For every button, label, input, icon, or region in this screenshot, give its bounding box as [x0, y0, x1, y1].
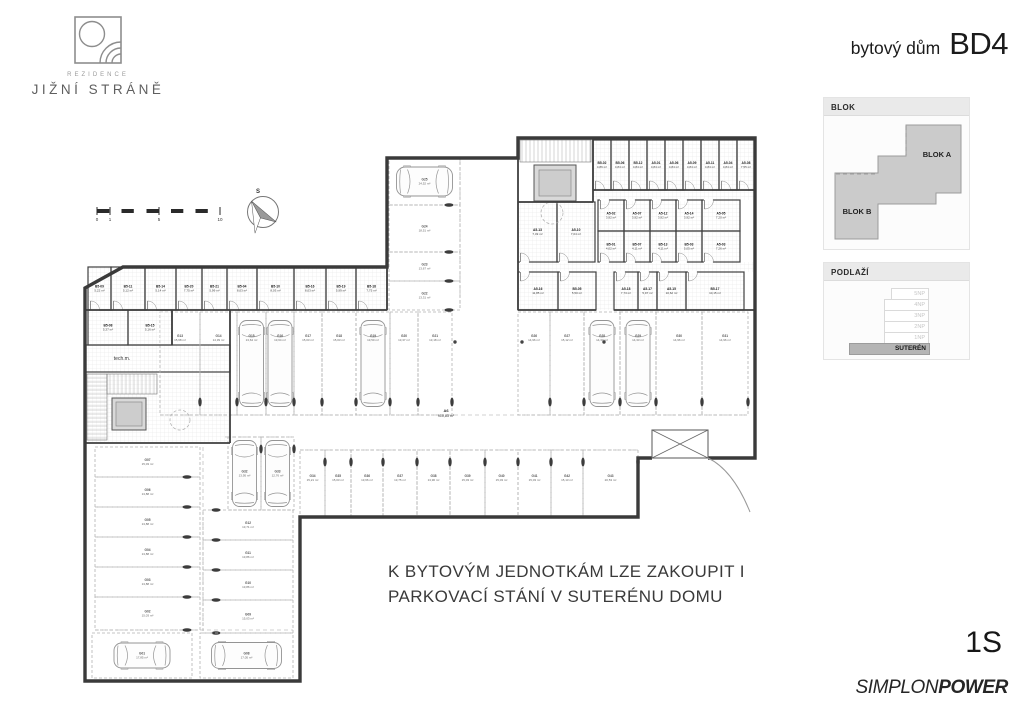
parking-space: G1213,71 m² [203, 508, 293, 540]
note-line-1: K BYTOVÝM JEDNOTKÁM LZE ZAKOUPIT I [388, 560, 745, 585]
parking-area: 14,96 m² [719, 338, 731, 342]
parking-area: 17,05 m² [241, 656, 253, 660]
parking-space: G1815,03 m² [320, 312, 356, 415]
parking-space: G0915,03 m² [203, 598, 293, 634]
plan-text: 5 [158, 217, 161, 222]
parking-space: G4320,53 m² [581, 450, 639, 517]
parking-space: G2013,37 m² [388, 312, 418, 415]
room-area: 7,75 m² [184, 289, 194, 293]
wheel-stop [183, 565, 192, 568]
parking-space: G2814,33 m² [582, 312, 620, 415]
storage-room: A5-1510,62 m² [657, 271, 686, 310]
parking-area: 14,96 m² [673, 338, 685, 342]
room-area: 4,84 m² [669, 165, 679, 169]
room-area: 10,15 m² [709, 291, 721, 295]
brand-top-label: REZIDENCE [28, 72, 168, 78]
wheel-stop [292, 398, 295, 407]
storage-room: B5-215,99 m² [202, 267, 227, 311]
parking-space: G0313,88 m² [95, 565, 200, 597]
parking-space: G1113,86 m² [203, 538, 293, 570]
parking-space: G1715,03 m² [292, 312, 322, 415]
room-area: 7,73 m² [621, 291, 631, 295]
parking-space: G1913,50 m² [354, 312, 390, 415]
wheel-stop [349, 458, 352, 467]
storage-room: B5-074,11 m² [624, 231, 650, 263]
plan-text: S [256, 189, 260, 195]
parking-space: G2715,12 m² [548, 312, 584, 415]
marketing-note: K BYTOVÝM JEDNOTKÁM LZE ZAKOUPIT I PARKO… [388, 560, 745, 609]
parking-area: 13,18 m² [429, 338, 441, 342]
parking-area: 15,03 m² [462, 478, 474, 482]
room-area: 4,02 m² [606, 247, 616, 251]
wheel-stop [198, 398, 201, 407]
parking-area: 13,37 m² [398, 338, 410, 342]
parking-space: G3415,21 m² [300, 450, 325, 517]
floorplan-sheet: REZIDENCE JIŽNÍ STRÁNĚ bytový dům BD4 [0, 0, 1024, 724]
storage-room: B5-207,75 m² [176, 267, 202, 311]
panel-blok-title: BLOK [824, 98, 969, 116]
storage-room: A5-175,97 m² [638, 271, 657, 310]
parking-space: G0513,88 m² [95, 505, 200, 537]
plan-text: 910,83 m² [438, 414, 455, 418]
room-area: 3,92 m² [658, 216, 668, 220]
wheel-stop [618, 398, 621, 407]
storage-room: A5-057,20 m² [702, 199, 740, 231]
floor-code: 1S [965, 626, 1002, 660]
wheel-stop [581, 458, 584, 467]
wheel-stop [323, 458, 326, 467]
plan-text: 0 [96, 217, 99, 222]
parking-area: 15,03 m² [302, 338, 314, 342]
room-area: 5,05 m² [684, 247, 694, 251]
parking-area: 13,88 m² [142, 582, 154, 586]
wheel-stop [212, 508, 221, 511]
stairs-icon [520, 140, 591, 162]
parking-space: G2113,18 m² [416, 312, 453, 415]
room-area: 5,50 m² [572, 291, 582, 295]
parking-space: G0117,85 m² [92, 633, 192, 678]
room-area: 10,62 m² [666, 291, 678, 295]
storage-room: A5-044,84 m² [719, 140, 737, 191]
storage-room: B5-145,14 m² [145, 267, 176, 311]
room-area: 7,26 m² [716, 247, 726, 251]
parking-space: G2213,31 m² [389, 279, 460, 311]
north-compass-icon [241, 195, 279, 233]
wheel-stop [700, 398, 703, 407]
parking-space: G3312,76 m² [259, 437, 295, 510]
wheel-stop [354, 398, 357, 407]
room-area: 5,22 m² [94, 289, 104, 293]
parking-area: 13,50 m² [367, 338, 379, 342]
block-map[interactable]: BLOK A BLOK B [824, 116, 971, 250]
parking-space: G3713,75 m² [381, 450, 417, 517]
room-area: 4,86 m² [597, 165, 607, 169]
storage-room: A5-064,84 m² [665, 140, 683, 191]
parking-space: G1513,64 m² [235, 312, 266, 415]
parking-space: G2914,33 m² [618, 312, 656, 415]
storage-room: A5-087,55 m² [737, 140, 755, 191]
parking-area: 13,86 m² [242, 585, 254, 589]
stairs-icon [87, 374, 107, 440]
wheel-stop [212, 568, 221, 571]
brand-name-label: JIŽNÍ STRÁNĚ [28, 82, 168, 97]
wheel-stop [445, 279, 454, 282]
wheel-stop [388, 398, 391, 407]
garage-ramp [652, 430, 750, 512]
storage-room: B5-134,11 m² [650, 231, 676, 263]
room-area: 4,84 m² [651, 165, 661, 169]
wheel-stop [381, 458, 384, 467]
parking-space: G4215,13 m² [549, 450, 583, 517]
floor-selector: 5NP4NP3NP2NP1NPSUTERÉN [849, 289, 929, 355]
parking-space: G3515,03 m² [323, 450, 351, 517]
panel-podlazi: PODLAŽÍ 5NP4NP3NP2NP1NPSUTERÉN [823, 262, 970, 360]
parking-space: G4015,03 m² [483, 450, 518, 517]
storage-room: B5-014,02 m² [598, 231, 624, 263]
storage-room: B5-085,37 m² [88, 310, 128, 345]
wheel-stop [183, 628, 192, 631]
wheel-stop [746, 398, 749, 407]
parking-space: G4115,03 m² [516, 450, 551, 517]
wheel-stop [264, 398, 267, 407]
parking-area: 13,31 m² [419, 296, 431, 300]
logo-bold: POWER [938, 677, 1008, 698]
room-area: 7,49 m² [532, 232, 542, 236]
building-footprint[interactable] [835, 125, 961, 239]
storage-room: B5-048,03 m² [227, 267, 257, 311]
storage-room: B5-024,86 m² [593, 140, 611, 191]
room-area: 5,97 m² [642, 291, 652, 295]
storage-room: B5-195,99 m² [326, 267, 356, 311]
storage-room: B5-108,03 m² [257, 267, 294, 311]
parking-area: 15,13 m² [561, 478, 573, 482]
parking-area: 15,68 m² [174, 338, 186, 342]
storage-room: A5-143,92 m² [676, 199, 702, 231]
parking-area: 15,21 m² [307, 478, 319, 482]
wheel-stop [183, 535, 192, 538]
parking-area: 15,03 m² [529, 478, 541, 482]
panel-blok: BLOK BLOK A BLOK B [823, 97, 970, 250]
storage-room: B5-124,84 m² [629, 140, 647, 191]
parking-area: 13,64 m² [246, 338, 258, 342]
wheel-stop [320, 398, 323, 407]
room-area: 3,92 m² [606, 216, 616, 220]
room-area: 4,84 m² [687, 165, 697, 169]
storage-room: A5-137,49 m² [518, 202, 557, 263]
parking-space: G2524,52 m² [389, 158, 460, 205]
room-area: 8,03 m² [270, 289, 280, 293]
parking-space: G0715,03 m² [95, 447, 200, 477]
storage-room: B5-064,84 m² [611, 140, 629, 191]
parking-area: 14,96 m² [528, 338, 540, 342]
parking-area: 14,33 m² [596, 338, 608, 342]
parking-space: G2614,96 m² [518, 312, 550, 415]
storage-room: B5-115,12 m² [111, 267, 145, 311]
parking-area: 12,76 m² [272, 474, 284, 478]
room-area: 7,75 m² [366, 289, 376, 293]
parking-area: 15,03 m² [332, 478, 344, 482]
storage-room: A5-1611,85 m² [518, 271, 558, 310]
room-area: 5,99 m² [209, 289, 219, 293]
storage-room: A5-073,92 m² [624, 199, 650, 231]
storage-room: A5-094,84 m² [683, 140, 701, 191]
storage-room: B5-035,05 m² [676, 231, 702, 263]
parking-area: 13,88 m² [142, 492, 154, 496]
room-area: 8,03 m² [305, 289, 315, 293]
wheel-stop [516, 458, 519, 467]
parking-area: 15,03 m² [333, 338, 345, 342]
title-building-code: BD4 [949, 26, 1008, 62]
storage-room: A5-114,84 m² [701, 140, 719, 191]
room-area: 11,85 m² [532, 291, 544, 295]
parking-area: 24,52 m² [419, 182, 431, 186]
block-a-label[interactable]: BLOK A [923, 150, 952, 159]
parking-area: 15,03 m² [496, 478, 508, 482]
parking-area: 17,85 m² [136, 656, 148, 660]
storage-room: A5-014,84 m² [647, 140, 665, 191]
room-area: 4,84 m² [615, 165, 625, 169]
plan-text: 1 [109, 217, 112, 222]
parking-area: 13,64 m² [274, 338, 286, 342]
room-area: 5,16 m² [145, 328, 155, 332]
parking-space: G2418,51 m² [389, 203, 460, 252]
parking-space: G3813,96 m² [415, 450, 450, 517]
parking-area: 15,03 m² [142, 614, 154, 618]
room-area: 5,12 m² [123, 289, 133, 293]
parking-area: 20,53 m² [605, 478, 617, 482]
wheel-stop [448, 458, 451, 467]
wheel-stop [292, 445, 295, 454]
parking-area: 15,12 m² [561, 338, 573, 342]
wheel-stop [549, 458, 552, 467]
room-area: 8,03 m² [237, 289, 247, 293]
parking-area: 15,03 m² [142, 462, 154, 466]
room-area: 5,99 m² [336, 289, 346, 293]
room-area: 4,84 m² [633, 165, 643, 169]
floor-item-basement[interactable]: SUTERÉN [849, 343, 930, 355]
wheel-stop [259, 445, 262, 454]
parking-space: G0215,03 m² [95, 595, 200, 631]
room-area: 3,92 m² [684, 216, 694, 220]
sheet-title: bytový dům BD4 [851, 26, 1008, 62]
parking-space: G1613,64 m² [264, 312, 294, 415]
storage-room: B5-1710,15 m² [686, 271, 744, 310]
parking-space: G2313,67 m² [389, 250, 460, 281]
wheel-stop [183, 505, 192, 508]
parking-area: 13,86 m² [242, 555, 254, 559]
simplonpower-logo: SIMPLONPOWER [856, 677, 1009, 699]
wheel-stop [483, 458, 486, 467]
parking-space: G3915,03 m² [448, 450, 485, 517]
wheel-stop [445, 308, 454, 311]
plan-text: 10 [217, 217, 223, 222]
wheel-stop [654, 398, 657, 407]
storage-room: A5-123,92 m² [650, 199, 676, 231]
room-area: 4,84 m² [705, 165, 715, 169]
wheel-stop [212, 598, 221, 601]
wheel-stop [416, 398, 419, 407]
title-prefix: bytový dům [851, 38, 940, 59]
room-area: 5,37 m² [103, 328, 113, 332]
parking-area: 13,66 m² [361, 478, 373, 482]
parking-space: G0613,88 m² [95, 475, 200, 507]
parking-space: G3613,66 m² [349, 450, 383, 517]
parking-area: 13,71 m² [242, 525, 254, 529]
wheel-stop [183, 475, 192, 478]
storage-room: A5-023,92 m² [598, 199, 624, 231]
storage-room: B5-055,50 m² [558, 271, 596, 310]
wheel-stop [548, 398, 551, 407]
note-line-2: PARKOVACÍ STÁNÍ V SUTERÉNU DOMU [388, 585, 745, 610]
room-area: 5,14 m² [155, 289, 165, 293]
wheel-stop [183, 595, 192, 598]
parking-space: G3114,96 m² [700, 312, 749, 415]
parking-space: G1013,86 m² [203, 568, 293, 600]
storage-room: B5-155,16 m² [128, 310, 172, 345]
parking-area: 13,88 m² [142, 522, 154, 526]
storage-room: B5-187,75 m² [356, 267, 387, 311]
parking-space: G3014,96 m² [654, 312, 702, 415]
logo-regular: SIMPLON [856, 677, 939, 698]
plan-text: tech.m. [114, 356, 130, 362]
plan-text: A6 [443, 408, 449, 413]
room-area: 3,92 m² [632, 216, 642, 220]
block-b-label[interactable]: BLOK B [843, 207, 872, 216]
parking-area: 13,96 m² [428, 478, 440, 482]
room-area: 4,84 m² [723, 165, 733, 169]
room-area: 7,55 m² [741, 165, 751, 169]
room-area: 7,20 m² [716, 216, 726, 220]
storage-room: B5-168,03 m² [294, 267, 326, 311]
room-area: 7,04 m² [571, 232, 581, 236]
room-area: 4,11 m² [658, 247, 668, 251]
parking-space: G3213,95 m² [228, 437, 261, 510]
wheel-stop [450, 398, 453, 407]
brand-logo-icon [74, 16, 122, 64]
scale-bar [97, 207, 221, 215]
tech-room [85, 345, 230, 372]
wheel-stop [235, 398, 238, 407]
wheel-stop [212, 538, 221, 541]
storage-room: A5-187,73 m² [614, 271, 638, 310]
parking-area: 14,33 m² [632, 338, 644, 342]
wheel-stop [445, 250, 454, 253]
wheel-stop [445, 203, 454, 206]
parking-area: 13,88 m² [142, 552, 154, 556]
wheel-stop [415, 458, 418, 467]
parking-area: 15,03 m² [242, 617, 254, 621]
panel-podlazi-title: PODLAŽÍ [824, 263, 969, 281]
parking-area: 13,67 m² [419, 267, 431, 271]
brand-logo: REZIDENCE JIŽNÍ STRÁNĚ [28, 16, 168, 97]
parking-area: 18,51 m² [419, 229, 431, 233]
driveway-arc [708, 458, 750, 512]
parking-area: 13,75 m² [394, 478, 406, 482]
parking-area: 13,95 m² [239, 474, 251, 478]
parking-space: G0817,05 m² [200, 633, 293, 678]
parking-space: G0413,88 m² [95, 535, 200, 567]
parking-area: 14,39 m² [213, 338, 225, 342]
storage-room: A5-037,26 m² [702, 231, 740, 263]
room-area: 4,11 m² [632, 247, 642, 251]
wheel-stop [582, 398, 585, 407]
